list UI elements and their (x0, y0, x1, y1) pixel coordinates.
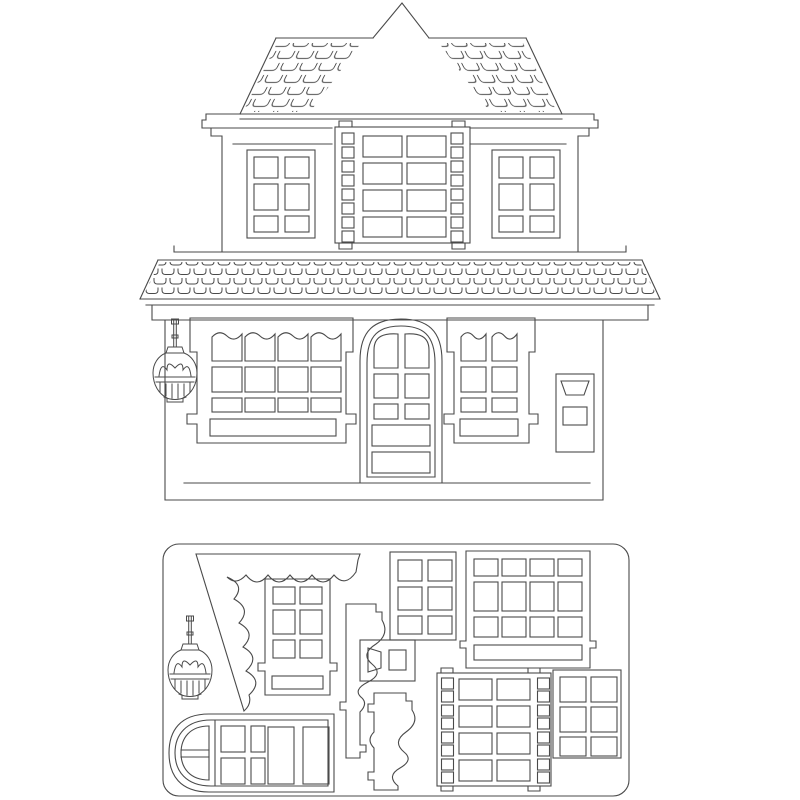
cornice-left (202, 114, 240, 251)
house-model (140, 3, 660, 500)
lower-window-left (187, 318, 356, 443)
filmstrip-window-part (437, 668, 551, 791)
side-squares-right (451, 133, 463, 242)
band-shingles (143, 262, 657, 296)
window-part-tall (258, 579, 337, 695)
front-door (360, 319, 442, 483)
window-part-large (460, 551, 596, 668)
gable-peak (373, 3, 429, 38)
mailbox-flap (561, 381, 589, 395)
upper-window-left (247, 150, 315, 238)
upper-floor (247, 121, 560, 249)
big-panes (363, 136, 446, 237)
window-part-2x3 (390, 552, 456, 640)
awning-band (140, 246, 660, 320)
wavy-bracket-part-b (368, 693, 415, 790)
upper-window-center (335, 121, 470, 249)
side-squares-right (538, 678, 550, 783)
door-part-rotated (169, 714, 334, 792)
eave-lines (240, 114, 562, 119)
lower-floor (153, 318, 603, 500)
side-squares-left (342, 133, 354, 242)
die-cut-sheet (163, 544, 629, 796)
cornice-right (562, 114, 598, 251)
lower-window-right (444, 318, 538, 443)
mailbox (556, 374, 594, 452)
lantern-part-icon (168, 616, 212, 699)
awning-part (196, 554, 360, 711)
line-art (140, 3, 660, 796)
shingles-left (243, 43, 361, 112)
upper-window-right (492, 150, 560, 238)
side-squares-left (442, 678, 454, 783)
product-image (0, 0, 800, 800)
shingles-right (439, 43, 557, 112)
window-part-thick-frame (553, 670, 621, 758)
